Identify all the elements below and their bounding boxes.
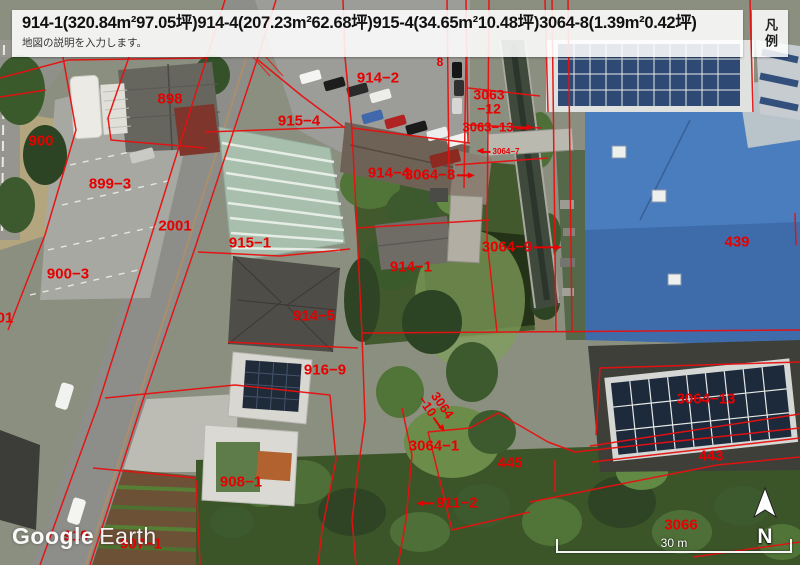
google-logo: Google bbox=[12, 523, 94, 549]
google-earth-watermark: GoogleEarth bbox=[12, 523, 157, 550]
map-viewport[interactable]: GoogleEarth 898900899−32001900−301915−49… bbox=[0, 0, 800, 565]
legend-button[interactable]: 凡例 bbox=[752, 10, 788, 57]
map-title: 914-1(320.84m²97.05坪)914-4(207.23m²62.68… bbox=[22, 13, 735, 34]
north-compass[interactable]: N bbox=[744, 486, 786, 544]
earth-logo: Earth bbox=[99, 523, 156, 549]
aerial-imagery[interactable] bbox=[0, 0, 800, 565]
north-arrow-icon bbox=[744, 486, 786, 520]
map-title-bar: 914-1(320.84m²97.05坪)914-4(207.23m²62.68… bbox=[12, 10, 743, 57]
north-letter: N bbox=[744, 526, 786, 547]
map-description: 地図の説明を入力します。 bbox=[22, 35, 735, 50]
